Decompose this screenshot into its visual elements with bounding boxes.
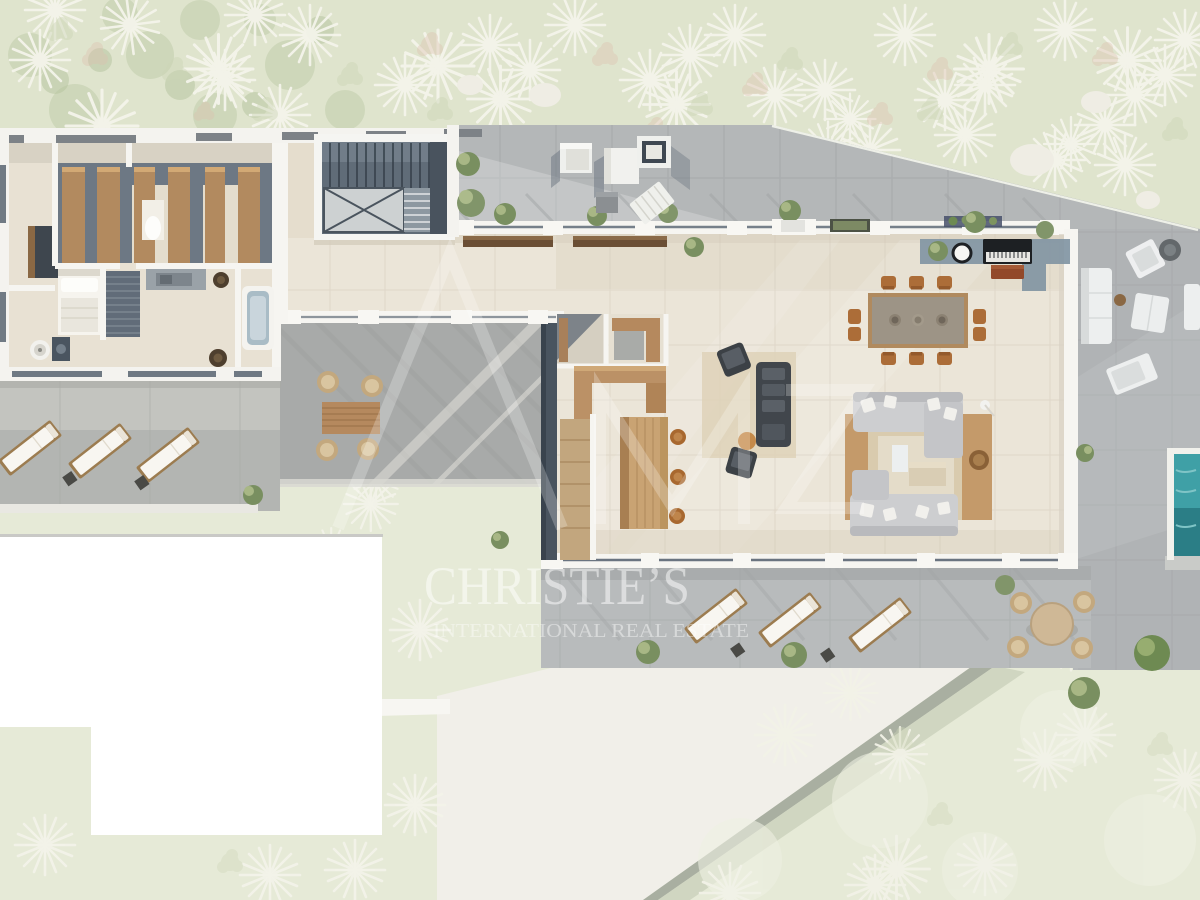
svg-text:INTERNATIONAL REAL ESTATE: INTERNATIONAL REAL ESTATE [433,620,749,642]
svg-text:CHRISTIE’S: CHRISTIE’S [424,556,690,616]
